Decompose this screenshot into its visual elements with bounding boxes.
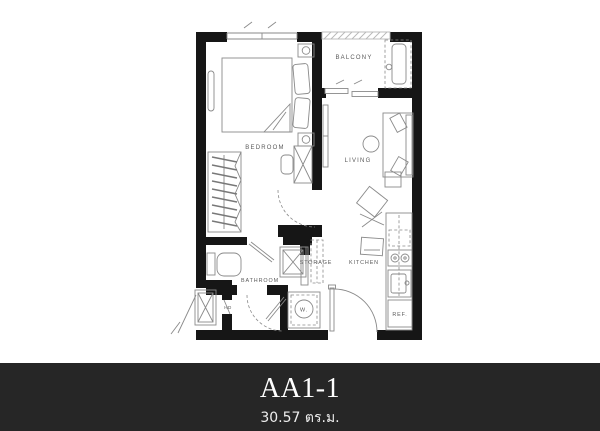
wardrobe [208, 152, 241, 232]
sofa [383, 113, 413, 187]
bedroom-label: BEDROOM [245, 145, 284, 151]
dressing-desk [281, 146, 312, 183]
tv-console [323, 105, 328, 167]
stove [388, 250, 412, 266]
bedroom-curtain [208, 71, 214, 111]
nightstand-lamp-top [298, 44, 314, 57]
unit-info-bar: AA1-1 30.57 ตร.ม. [0, 363, 600, 431]
unit-area: 30.57 ตร.ม. [260, 407, 339, 429]
bedroom-door-swing [278, 190, 315, 227]
unit-name: AA1-1 [260, 374, 340, 404]
bathroom-label: BATHROOM [241, 278, 279, 284]
round-table [363, 136, 379, 152]
storage-label: STORAGE [300, 260, 333, 266]
water-heater-label: HD [224, 305, 232, 310]
ac-condenser-outdoor [171, 290, 216, 334]
bed [222, 58, 310, 132]
ac-condenser-balcony [385, 40, 411, 88]
balcony-sliding-door [325, 80, 378, 97]
refrigerator-label: REF. [392, 312, 407, 318]
bedroom-window [227, 22, 297, 39]
floorplan-card: BEDROOM BALCONY LIVING BATHROOM STORAGE … [0, 0, 600, 431]
washer-label: W. [300, 308, 308, 314]
bathroom-door-leaf-top [249, 242, 274, 262]
sink [388, 270, 411, 297]
balcony-label: BALCONY [335, 55, 372, 61]
floor-plan-drawing: BEDROOM BALCONY LIVING BATHROOM STORAGE … [0, 0, 600, 363]
bathroom-door-swing [247, 295, 283, 331]
dining-set [357, 186, 388, 255]
toilet [207, 253, 241, 276]
floor-plan-area: BEDROOM BALCONY LIVING BATHROOM STORAGE … [0, 0, 600, 363]
balcony-railing [322, 32, 390, 39]
kitchen-label: KITCHEN [349, 260, 379, 266]
nightstand-lamp-bottom [298, 133, 314, 146]
entrance-door [329, 285, 378, 332]
living-label: LIVING [345, 158, 372, 164]
